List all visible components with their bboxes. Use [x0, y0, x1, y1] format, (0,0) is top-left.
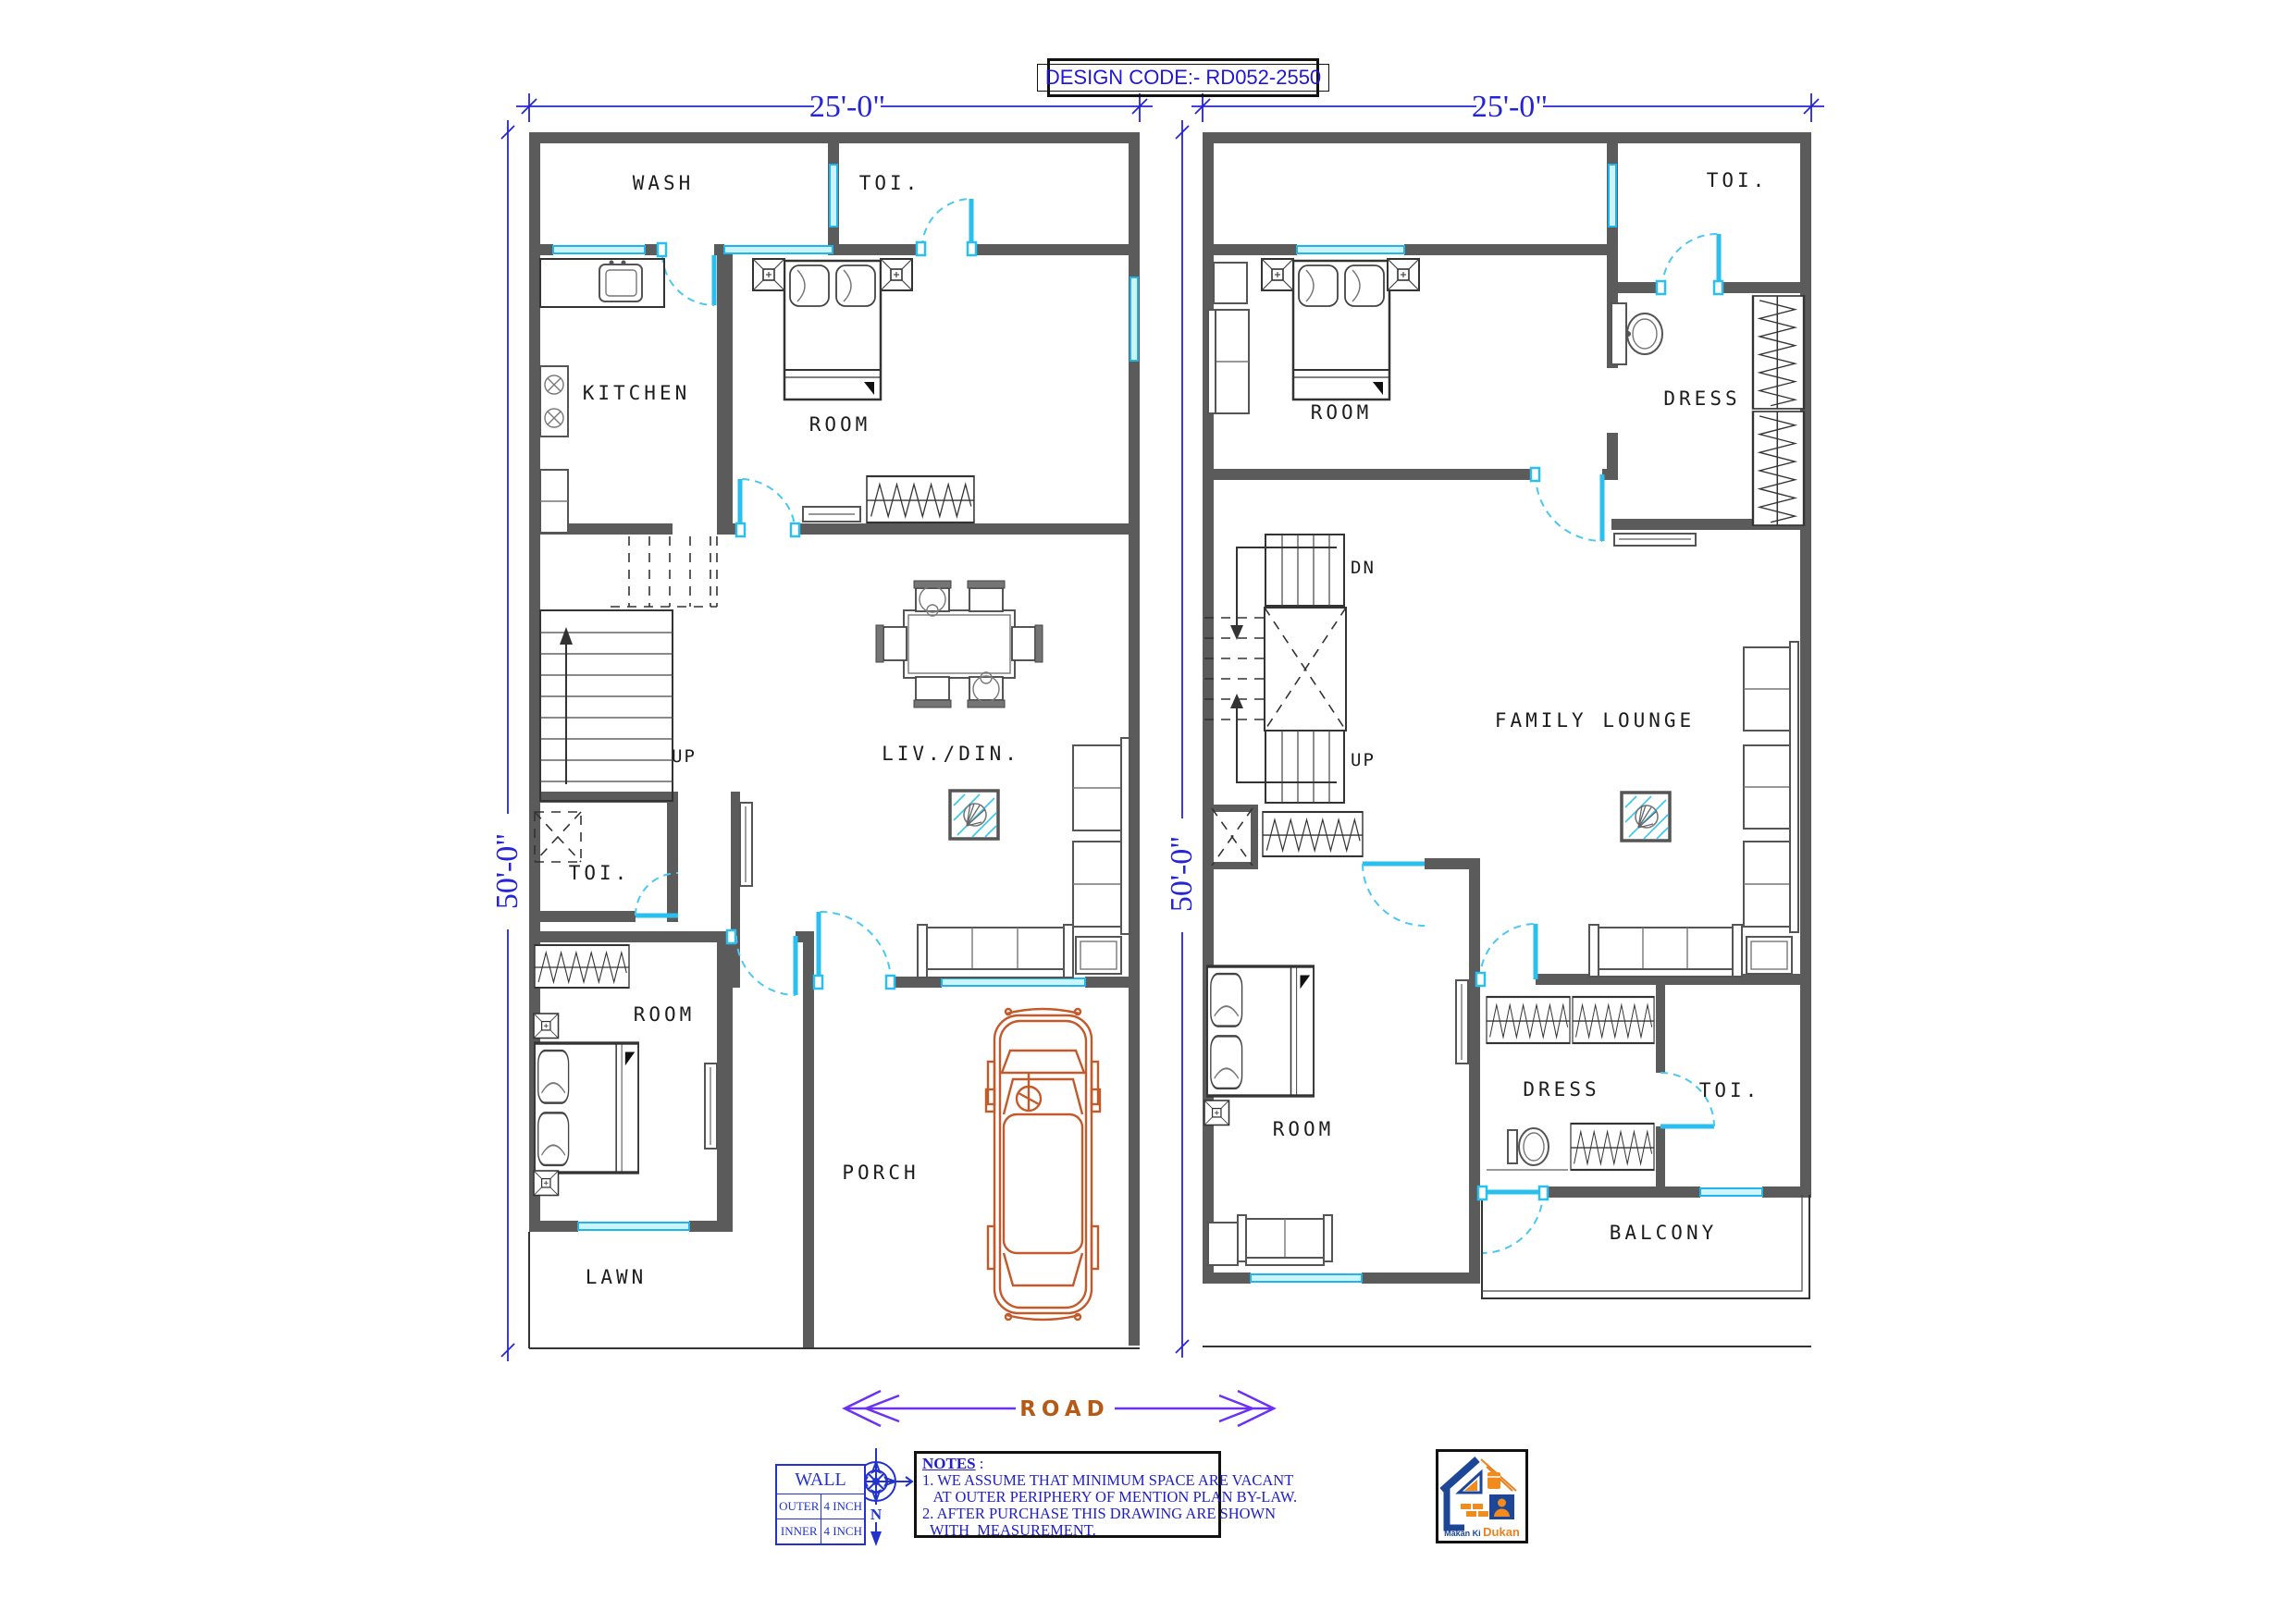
lamp-icon [534, 1171, 559, 1196]
window [942, 978, 1085, 986]
room-label-room-bottom: ROOM [1273, 1118, 1335, 1140]
notes-colon: : [976, 1455, 984, 1472]
side-table-icon [1076, 937, 1121, 974]
room-label-dress-top: DRESS [1663, 387, 1740, 410]
dimension-depth-ground: 50'-0" [490, 833, 525, 909]
room-label-family-lounge: FAMILY LOUNGE [1495, 709, 1695, 732]
window [724, 246, 833, 253]
wall-table-row-value: 4 INCH [821, 1494, 865, 1519]
staircase-first [1204, 535, 1346, 803]
window [1130, 277, 1138, 361]
room-label-wash: WASH [633, 172, 695, 194]
room-label-toi-bottom: TOI. [1699, 1079, 1761, 1101]
side-table-icon [1208, 1223, 1238, 1265]
stairs-label-up: UP [1351, 750, 1376, 770]
side-table-icon [1214, 263, 1247, 303]
wall-spec-table: WALL OUTER 4 INCH INNER 4 INCH [775, 1464, 866, 1545]
notes-line: 2. AFTER PURCHASE THIS DRAWING ARE SHOWN [922, 1506, 1213, 1522]
wall-table-row-value: 4 INCH [821, 1519, 865, 1545]
dress-top-fittings [1611, 296, 1804, 525]
plan-canvas: WASH TOI. KITCHEN ROOM UP LIV./DIN. TOI.… [0, 0, 2296, 1623]
logo-text-makan: Makan Ki [1444, 1529, 1481, 1538]
lamp-icon [1204, 1100, 1229, 1125]
car-icon [986, 1009, 1100, 1320]
wardrobe-icon [535, 945, 629, 988]
bed-icon [1207, 966, 1314, 1096]
room-label-toi-top: TOI. [1707, 169, 1769, 191]
room-label-dress-bottom: DRESS [1523, 1078, 1599, 1100]
wall-table-row-label: OUTER [776, 1494, 821, 1519]
bedroom-bottom-furniture [1204, 966, 1468, 1265]
window [1297, 246, 1404, 253]
ground-floor-plan: WASH TOI. KITCHEN ROOM UP LIV./DIN. TOI.… [529, 132, 1140, 1348]
room-label-livdin: LIV./DIN. [882, 743, 1020, 765]
design-code-box: DESIGN CODE:- RD052-2550 [1047, 58, 1319, 97]
room-label-room-top: ROOM [809, 413, 871, 436]
lamp-icon [1388, 259, 1419, 290]
notes-line: WITH MEASUREMENT. [922, 1522, 1213, 1539]
wardrobe-icon [1571, 1124, 1654, 1170]
window [553, 246, 645, 253]
road-label: ROAD [1019, 1397, 1110, 1421]
room-label-porch: PORCH [842, 1162, 919, 1184]
wardrobe-icon [1263, 812, 1363, 856]
toilet-mid [535, 812, 581, 862]
balcony-railing [1482, 1195, 1809, 1298]
wardrobe-icon [1573, 997, 1654, 1043]
window [578, 1223, 689, 1230]
family-lounge-furniture [1589, 534, 1798, 977]
window [1609, 165, 1616, 227]
wardrobe-icon [867, 476, 974, 523]
room-label-lawn: LAWN [586, 1266, 648, 1288]
wardrobe-icon [1753, 412, 1804, 525]
floor-medallion-icon [950, 791, 998, 839]
stairs-label-up: UP [672, 746, 697, 767]
window [1700, 1188, 1762, 1196]
wall-table-row-label: INNER [776, 1519, 821, 1545]
first-floor-plan: TOI. ROOM DRESS DN UP FAMILY LOUNGE ROOM… [1203, 132, 1811, 1346]
brand-logo-icon [1438, 1452, 1520, 1535]
north-label: N [870, 1506, 883, 1523]
bedroom-top-furniture [1208, 259, 1419, 413]
window [1251, 1274, 1362, 1282]
lamp-icon [753, 259, 784, 290]
bedroom-top-furniture [753, 259, 974, 523]
stove-icon [540, 366, 568, 436]
dimension-depth-first: 50'-0" [1165, 836, 1199, 912]
notes-box: NOTES : 1. WE ASSUME THAT MINIMUM SPACE … [914, 1451, 1221, 1538]
brand-logo: Makan Ki Dukan [1436, 1449, 1528, 1543]
dining-set [876, 581, 1043, 707]
room-label-kitchen: KITCHEN [583, 382, 691, 404]
logo-text-dukan: Dukan [1483, 1525, 1520, 1539]
road-arrow: ROAD [845, 1391, 1274, 1426]
lamp-icon [881, 259, 912, 290]
window [830, 165, 837, 227]
room-label-toi-mid: TOI. [569, 862, 631, 884]
bed-icon [535, 1043, 638, 1173]
bedroom-bottom-furniture [534, 945, 717, 1196]
lamp-icon [1262, 259, 1293, 290]
drawing-sheet: WASH TOI. KITCHEN ROOM UP LIV./DIN. TOI.… [0, 0, 2296, 1623]
wardrobe-icon [1753, 296, 1804, 409]
room-label-room-bottom: ROOM [634, 1003, 696, 1026]
notes-line: 1. WE ASSUME THAT MINIMUM SPACE ARE VACA… [922, 1472, 1213, 1489]
wall-table-title: WALL [776, 1465, 865, 1494]
dimension-width-ground: 25'-0" [809, 90, 885, 124]
hall-storage [1212, 808, 1363, 866]
room-label-toi-top: TOI. [859, 172, 921, 194]
notes-title: NOTES [922, 1455, 976, 1472]
wardrobe-icon [1487, 997, 1570, 1043]
bed-icon [784, 261, 881, 400]
room-label-balcony: BALCONY [1610, 1222, 1718, 1244]
stairs-label-dn: DN [1351, 558, 1376, 578]
notes-line: AT OUTER PERIPHERY OF MENTION PLAN BY-LA… [922, 1489, 1213, 1506]
floor-medallion-icon [1622, 793, 1670, 841]
dimension-width-first: 25'-0" [1472, 90, 1548, 124]
wc-icon [1508, 1130, 1517, 1163]
bed-icon [1293, 261, 1389, 400]
room-label-room-top: ROOM [1311, 401, 1373, 424]
design-code-text: DESIGN CODE:- RD052-2550 [1037, 64, 1329, 92]
side-table-icon [1747, 937, 1792, 974]
lamp-icon [534, 1014, 559, 1039]
